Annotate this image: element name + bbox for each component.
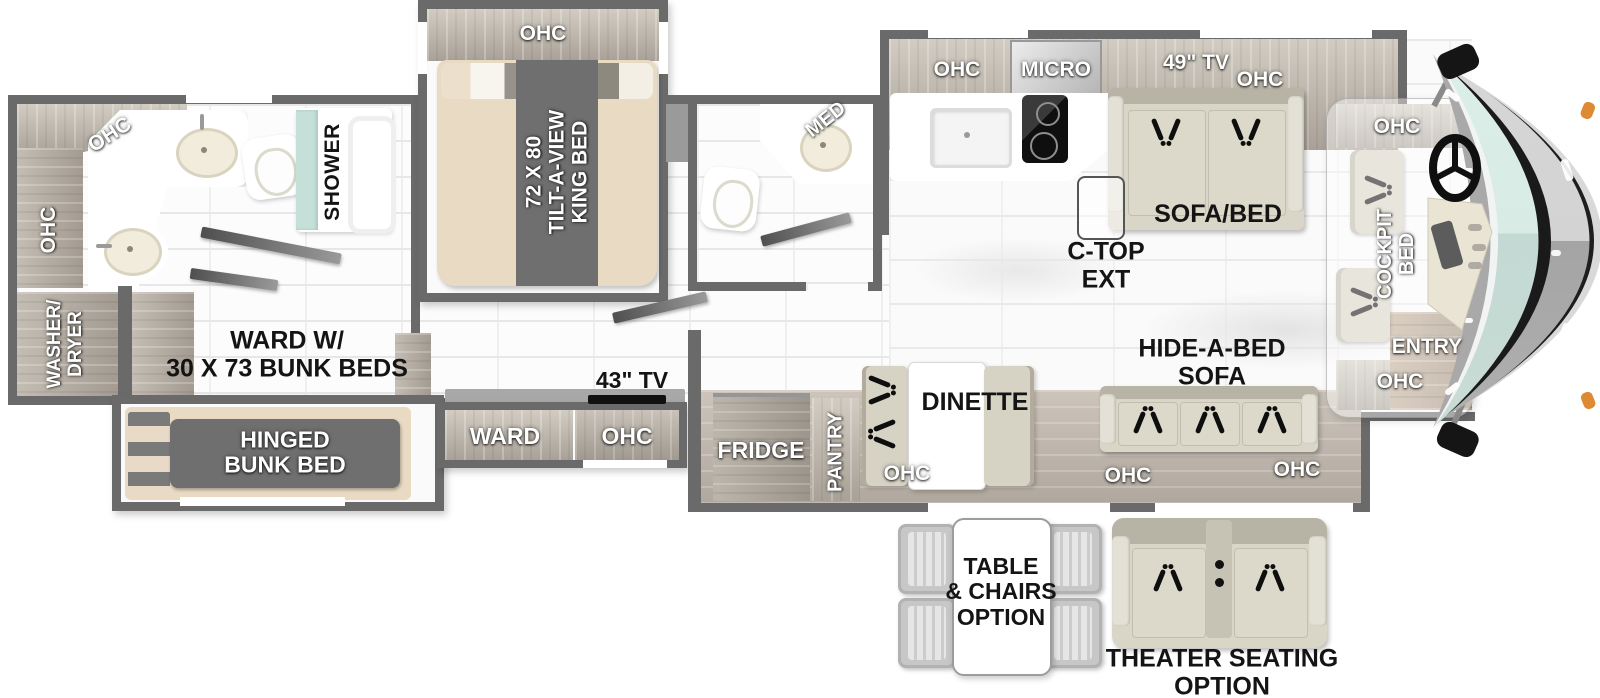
bath-sink-1-drain — [201, 147, 207, 153]
hide-a-bed-sofa — [1100, 386, 1318, 452]
king-ohc-label: OHC — [520, 23, 567, 45]
half-bath-door-gap — [806, 282, 868, 291]
hide-a-bed-arm-right — [1302, 394, 1318, 444]
rv-floorplan: OHC OHC SHOWER WASHER/DRYER WARD W/30 X … — [0, 0, 1600, 698]
theater-seating — [1112, 518, 1327, 648]
kitchen-ohc-label: OHC — [934, 59, 981, 81]
mirror-icon-bottom — [1434, 419, 1482, 460]
theater-cupholder-2 — [1215, 578, 1224, 587]
recline-arrow-icon — [1254, 408, 1290, 436]
recline-arrow-icon — [1252, 566, 1288, 594]
king-slide-window-left — [418, 22, 427, 74]
recline-arrow-icon — [1150, 566, 1186, 594]
king-bed-label: 72 X 80TILT-A-VIEWKING BED — [522, 110, 591, 234]
entry-label: ENTRY — [1392, 336, 1462, 358]
living-slide-left-wall — [688, 330, 701, 512]
kitchen-ohc2-label: OHC — [1237, 69, 1284, 91]
rear-bath-ohc-side-label: OHC — [38, 207, 60, 254]
kitchen-slide-left-wall — [880, 30, 889, 235]
dinette-ohc-label: OHC — [884, 463, 931, 485]
marker-light-top — [1579, 100, 1596, 120]
bath-faucet-1 — [200, 114, 204, 130]
hide-a-bed-arm-left — [1100, 394, 1116, 444]
micro-label: MICRO — [1021, 59, 1091, 81]
recline-arrow-icon — [1148, 116, 1184, 144]
shower-pan — [348, 116, 396, 234]
laundry-divider-wall — [118, 286, 132, 405]
bunk-hall-label: WARD W/30 X 73 BUNK BEDS — [166, 328, 408, 383]
sofa-bed-label: SOFA/BED — [1154, 201, 1282, 227]
tv43-label: 43" TV — [596, 368, 668, 392]
bath-sink-1 — [176, 128, 238, 178]
kitchen-wall-window-1 — [928, 30, 1028, 38]
tv-43-icon — [588, 395, 666, 404]
pantry-label: PANTRY — [826, 412, 847, 492]
kitchen-sink-drain — [964, 132, 970, 138]
living-slide-window-2 — [1155, 503, 1353, 512]
living-slide-right-wall — [1361, 412, 1370, 512]
rear-wall-window — [186, 95, 272, 103]
kitchen-wall-window-2 — [1200, 30, 1372, 38]
bunk-ladder — [128, 412, 170, 496]
bath-sink-2 — [104, 228, 162, 276]
half-bath-sink-drain — [820, 142, 826, 148]
ctop-ext-outline — [1077, 176, 1125, 240]
recline-arrow-icon — [1228, 116, 1264, 144]
cockpit-ohc-top-label: OHC — [1374, 116, 1421, 138]
fridge-label: FRIDGE — [718, 438, 805, 462]
dinette-bench-right — [984, 366, 1034, 486]
recline-arrow-icon — [1192, 408, 1228, 436]
cockpit-ohc-bottom-label: OHC — [1377, 371, 1424, 393]
ctop-ext-label: C-TOPEXT — [1067, 239, 1144, 294]
recline-arrow-icon — [1130, 408, 1166, 436]
hide-a-bed-label: HIDE-A-BEDSOFA — [1138, 336, 1285, 391]
shower-glass — [296, 110, 318, 230]
living-slide-window-1 — [928, 503, 1110, 512]
theater-arm-left — [1112, 536, 1130, 626]
dinette-arrow-icon — [870, 416, 898, 452]
bunk-slide-window — [180, 497, 345, 506]
sofa-bed-arm-right — [1288, 96, 1304, 212]
theater-option-label: THEATER SEATINGOPTION — [1106, 646, 1338, 698]
cooktop-burner-1 — [1036, 102, 1060, 126]
cooktop-burner-2 — [1030, 132, 1058, 160]
kitchen-sink — [930, 108, 1012, 168]
bath-sink-2-drain — [127, 246, 133, 252]
cockpit-bed-label: COCKPITBED — [1374, 209, 1418, 299]
theater-cupholder-1 — [1215, 560, 1224, 569]
theater-arm-right — [1309, 536, 1327, 626]
mid-ohc-label: OHC — [601, 424, 652, 448]
living-ohc-b-label: OHC — [1274, 459, 1321, 481]
dinette-arrow-icon — [866, 372, 894, 408]
marker-light-bottom — [1579, 390, 1596, 410]
king-slide-window-right — [659, 22, 668, 74]
shower-label: SHOWER — [322, 123, 344, 221]
mid-ward-label: WARD — [470, 424, 540, 448]
living-ohc-a-label: OHC — [1105, 465, 1152, 487]
bath-faucet-2 — [96, 244, 112, 248]
table-chairs-option-label: TABLE& CHAIRSOPTION — [945, 554, 1056, 630]
tv49-label: 49" TV — [1163, 52, 1229, 74]
washer-dryer-label: WASHER/DRYER — [45, 300, 87, 389]
dinette-label: DINETTE — [922, 389, 1029, 415]
mid-cab-window — [583, 460, 667, 468]
hinged-bunk-label: HINGEDBUNK BED — [224, 428, 345, 479]
